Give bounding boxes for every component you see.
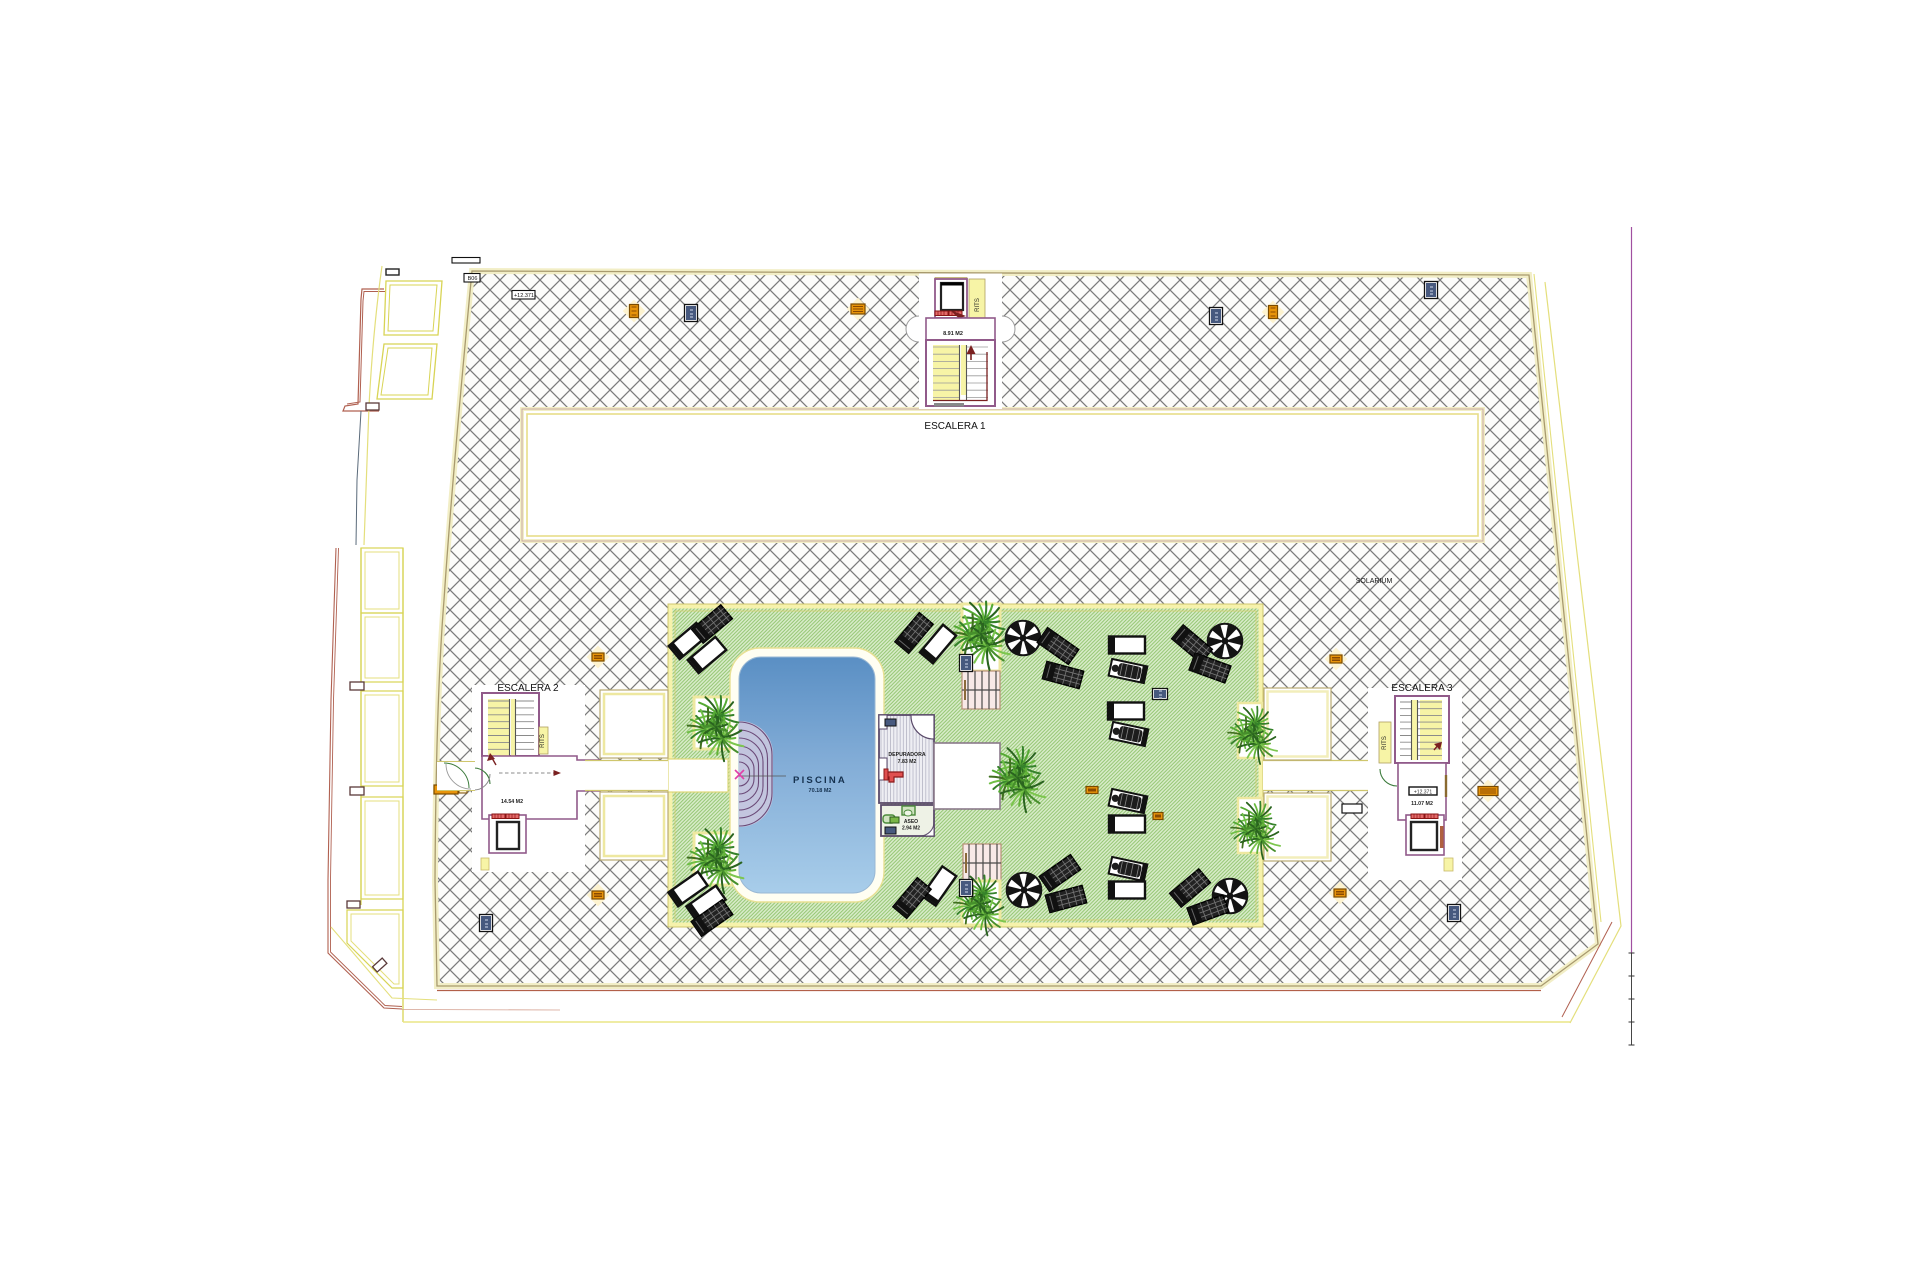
svg-text:DEPURADORA: DEPURADORA [888, 752, 925, 758]
svg-text:RITS: RITS [540, 734, 546, 748]
svg-text:B06: B06 [468, 276, 478, 282]
svg-text:ASEO: ASEO [904, 819, 918, 825]
svg-text:ESCALERA 3: ESCALERA 3 [1391, 683, 1453, 694]
svg-text:7.83 M2: 7.83 M2 [898, 759, 917, 765]
svg-text:RITS: RITS [1382, 736, 1388, 750]
svg-text:SOLARIUM: SOLARIUM [1356, 578, 1393, 585]
svg-text:RITS: RITS [975, 298, 981, 312]
svg-text:70.18 M2: 70.18 M2 [809, 788, 832, 794]
svg-text:14.54 M2: 14.54 M2 [501, 799, 523, 805]
svg-text:11.07 M2: 11.07 M2 [1411, 801, 1433, 807]
svg-text:+12.371: +12.371 [514, 293, 534, 299]
svg-text:2.94 M2: 2.94 M2 [902, 826, 920, 832]
svg-text:PISCINA: PISCINA [793, 775, 847, 786]
svg-text:ESCALERA 2: ESCALERA 2 [497, 683, 559, 694]
svg-text:ESCALERA 1: ESCALERA 1 [924, 421, 986, 432]
svg-text:+12.371: +12.371 [1414, 790, 1432, 796]
svg-text:8.91 M2: 8.91 M2 [943, 331, 963, 337]
